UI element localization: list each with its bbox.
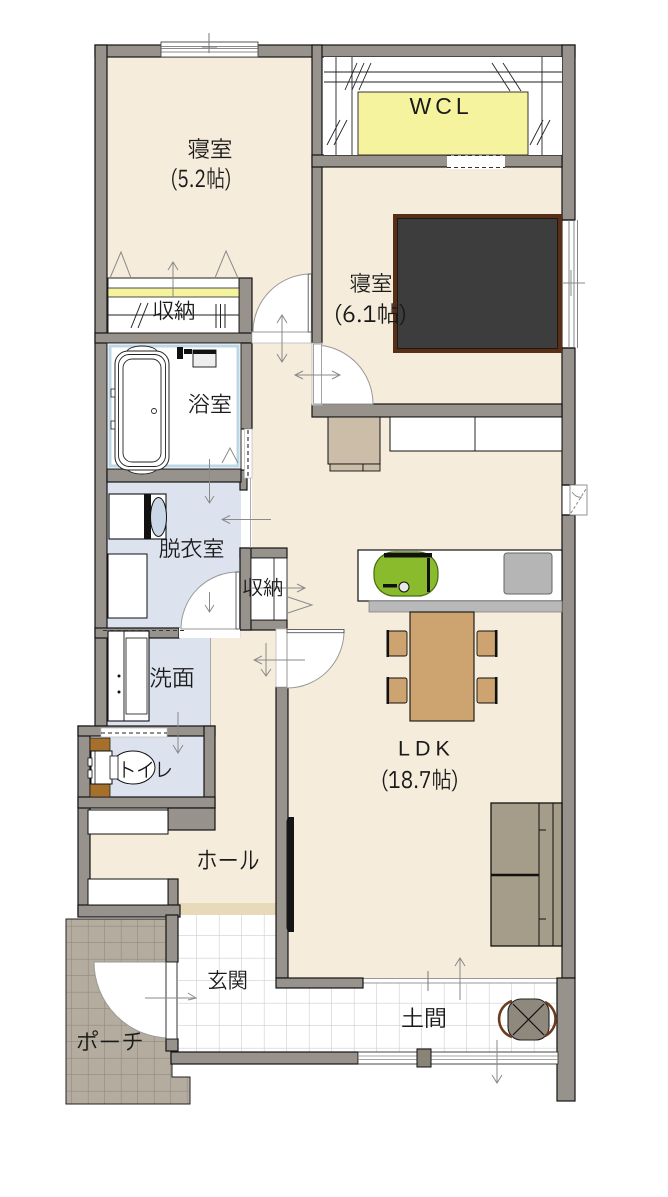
svg-text:LDK: LDK [398, 737, 455, 761]
svg-text:WCL: WCL [410, 93, 473, 119]
